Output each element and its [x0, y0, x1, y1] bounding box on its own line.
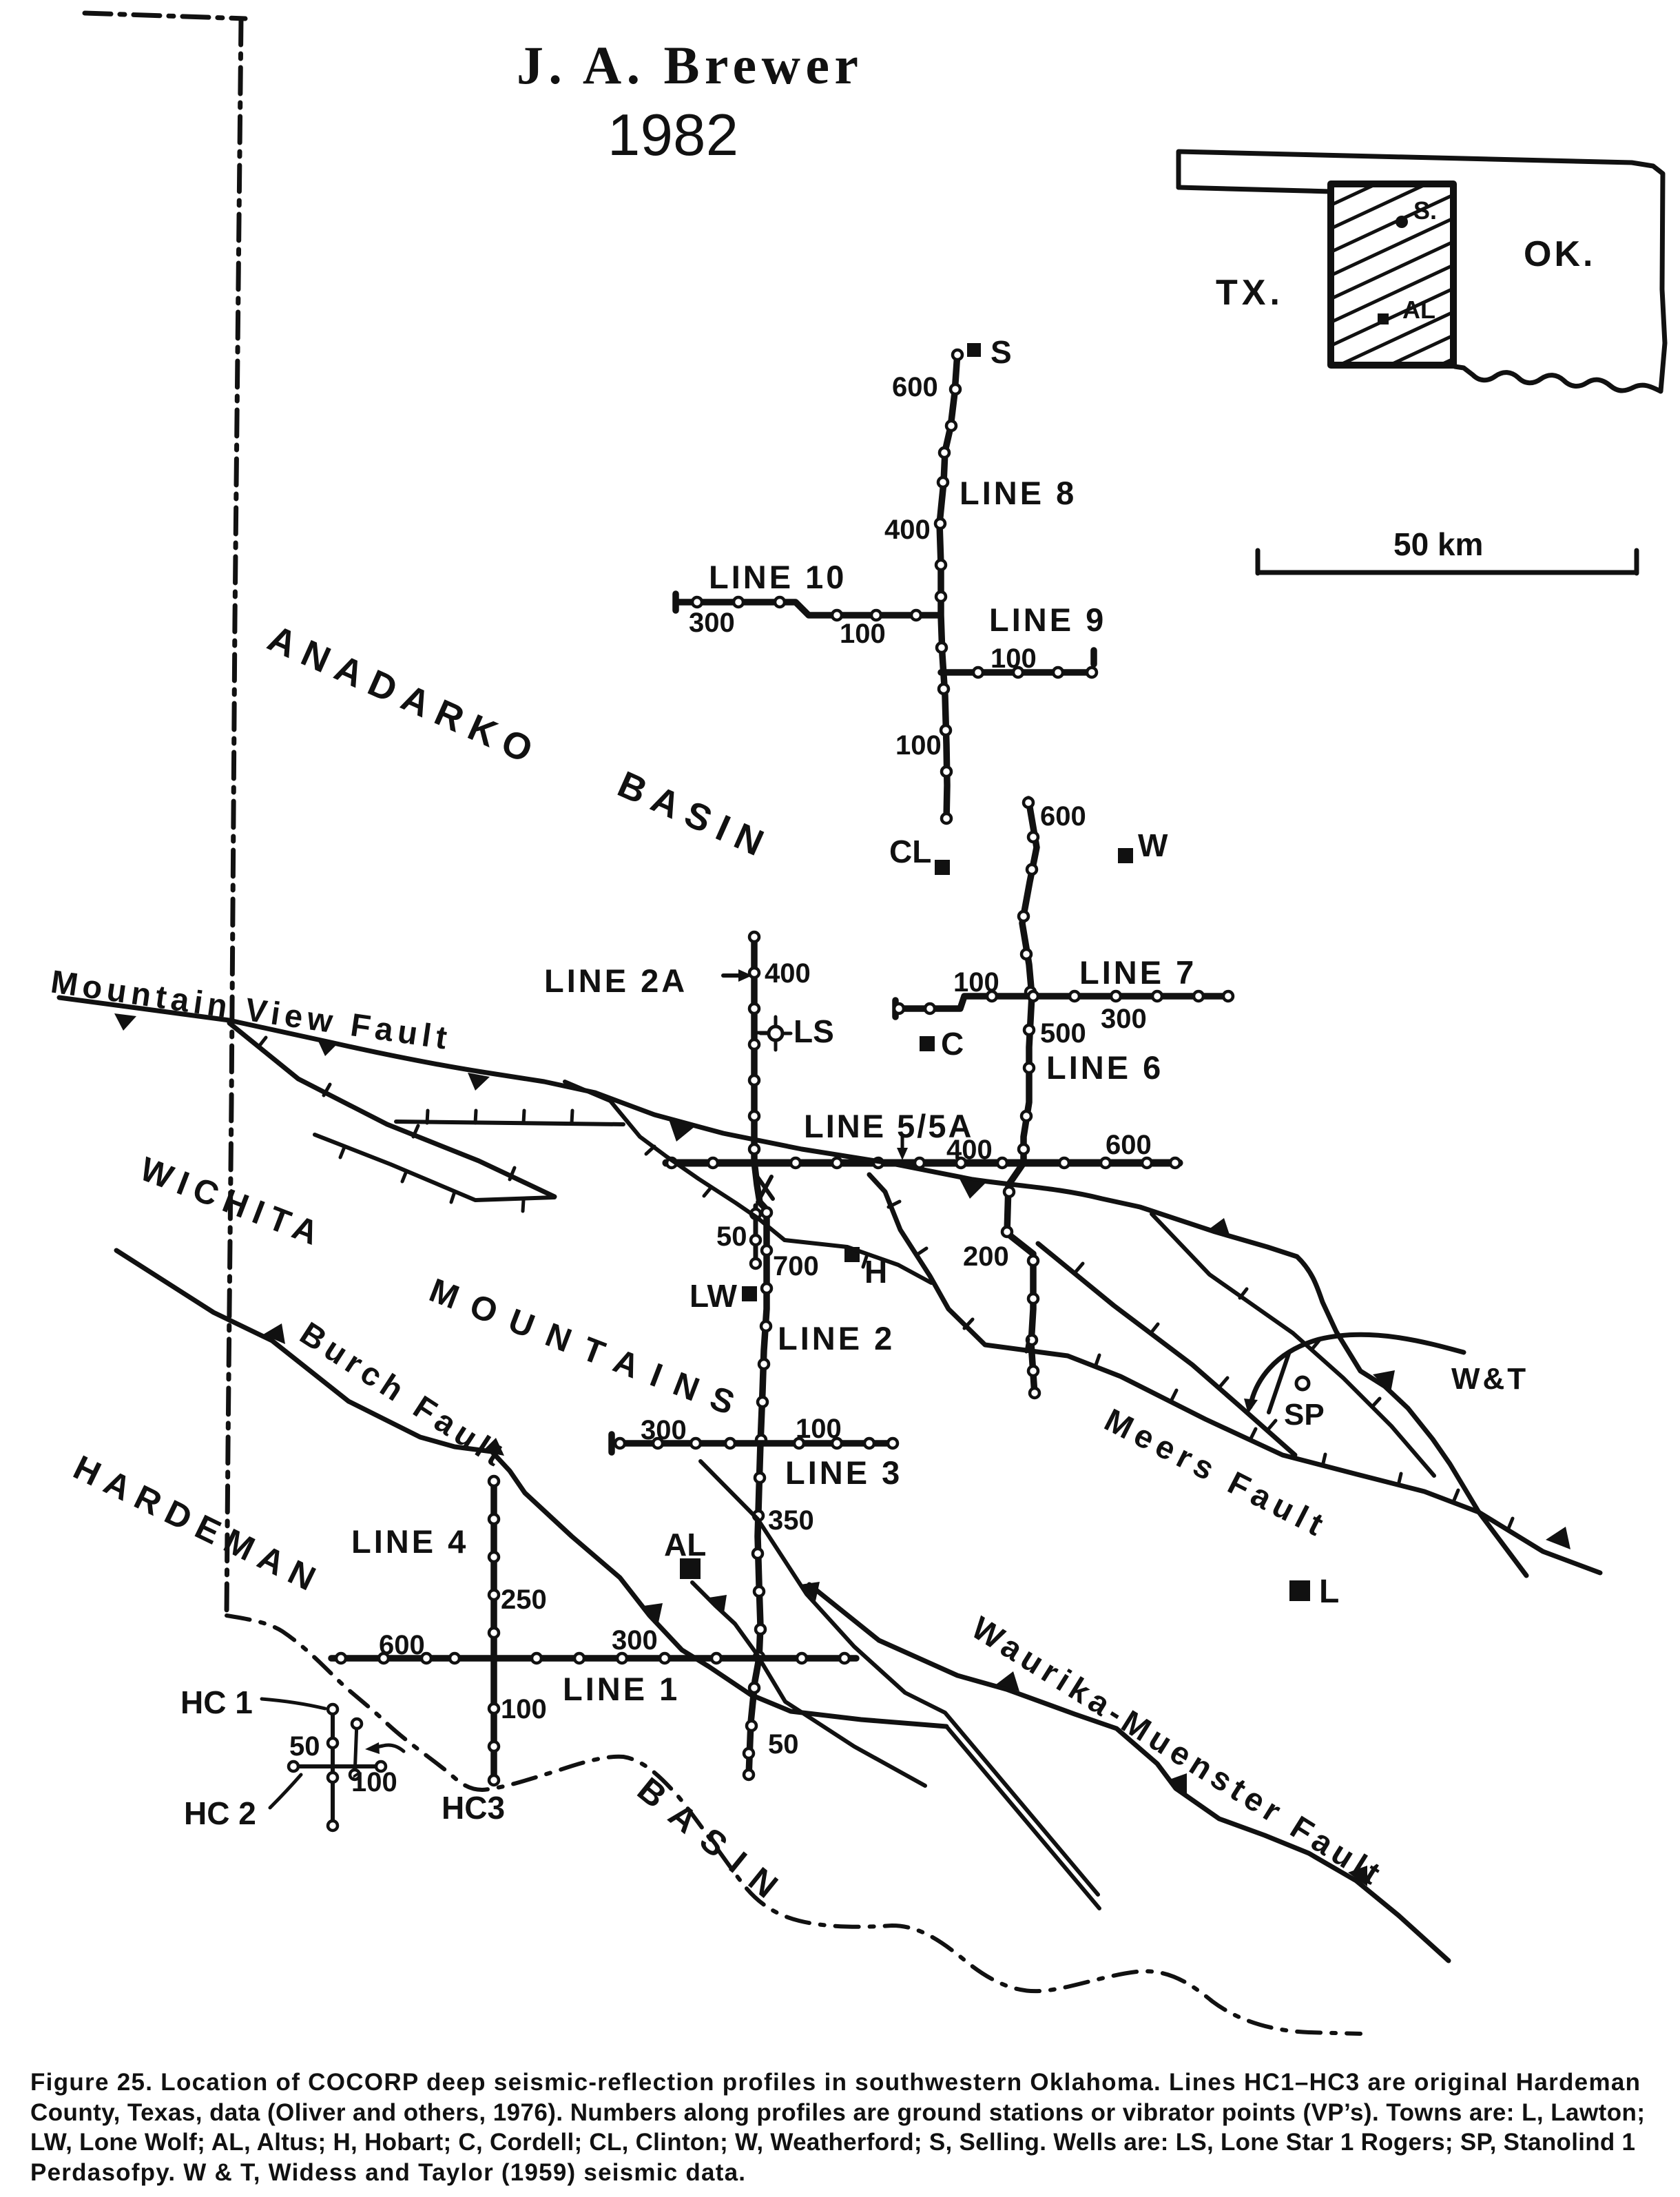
- svg-text:LINE 10: LINE 10: [709, 559, 847, 595]
- svg-text:300: 300: [641, 1415, 687, 1445]
- svg-text:350: 350: [768, 1505, 814, 1536]
- svg-text:AL: AL: [1402, 296, 1435, 324]
- svg-text:L: L: [1319, 1574, 1339, 1610]
- svg-text:50: 50: [716, 1221, 747, 1252]
- svg-text:300: 300: [612, 1625, 658, 1656]
- svg-text:100: 100: [991, 643, 1037, 674]
- svg-text:LW: LW: [689, 1278, 738, 1314]
- svg-text:400: 400: [884, 515, 931, 545]
- svg-text:CL: CL: [889, 834, 931, 869]
- svg-text:W: W: [1138, 827, 1168, 863]
- svg-text:100: 100: [351, 1767, 397, 1797]
- svg-text:600: 600: [379, 1630, 425, 1660]
- svg-text:LINE 3: LINE 3: [785, 1454, 902, 1491]
- svg-text:600: 600: [1040, 801, 1086, 832]
- svg-text:Figure 25. Location of COCORP: Figure 25. Location of COCORP deep seism…: [30, 2069, 1640, 2096]
- svg-text:600: 600: [1106, 1130, 1152, 1160]
- svg-text:LINE 8: LINE 8: [960, 475, 1077, 511]
- svg-text:50: 50: [289, 1731, 320, 1762]
- svg-text:50: 50: [768, 1729, 799, 1760]
- svg-text:HC 2: HC 2: [184, 1795, 256, 1831]
- svg-text:LINE 6: LINE 6: [1046, 1049, 1163, 1086]
- svg-text:S: S: [991, 334, 1012, 370]
- svg-text:300: 300: [689, 608, 735, 638]
- svg-text:LINE 2A: LINE 2A: [544, 962, 687, 999]
- svg-text:C: C: [941, 1026, 964, 1062]
- svg-text:400: 400: [765, 958, 811, 989]
- svg-text:50 km: 50 km: [1393, 526, 1483, 562]
- svg-text:SP: SP: [1284, 1398, 1325, 1432]
- svg-text:LINE 1: LINE 1: [563, 1671, 680, 1707]
- svg-text:Perdasofpy. W & T, Widess and: Perdasofpy. W & T, Widess and Taylor (19…: [30, 2159, 745, 2186]
- svg-text:J. A. Brewer: J. A. Brewer: [517, 35, 861, 95]
- svg-text:200: 200: [963, 1241, 1009, 1272]
- svg-text:100: 100: [501, 1694, 547, 1724]
- svg-text:100: 100: [895, 730, 942, 761]
- svg-text:100: 100: [840, 619, 886, 649]
- svg-text:County, Texas, data (Oliver an: County, Texas, data (Oliver and others, …: [30, 2099, 1645, 2126]
- svg-text:LINE 7: LINE 7: [1079, 954, 1196, 991]
- svg-text:S.: S.: [1413, 196, 1437, 225]
- svg-text:400: 400: [946, 1135, 993, 1165]
- svg-text:HC 1: HC 1: [180, 1684, 253, 1720]
- svg-text:100: 100: [953, 967, 999, 998]
- svg-text:LS: LS: [794, 1013, 834, 1049]
- svg-text:AL: AL: [664, 1527, 706, 1562]
- svg-text:LINE 4: LINE 4: [351, 1523, 468, 1560]
- svg-text:LW, Lone Wolf; AL, Altus; H, H: LW, Lone Wolf; AL, Altus; H, Hobart; C, …: [30, 2129, 1635, 2156]
- svg-text:LINE 9: LINE 9: [989, 601, 1106, 638]
- svg-text:TX.: TX.: [1216, 273, 1284, 313]
- svg-text:1982: 1982: [608, 103, 738, 168]
- svg-text:HC3: HC3: [442, 1790, 505, 1826]
- svg-text:100: 100: [796, 1414, 842, 1444]
- svg-text:300: 300: [1101, 1004, 1147, 1034]
- svg-text:LINE 2: LINE 2: [778, 1320, 895, 1357]
- svg-text:250: 250: [501, 1585, 547, 1615]
- svg-text:700: 700: [773, 1251, 819, 1281]
- svg-text:OK.: OK.: [1524, 234, 1595, 274]
- svg-text:W&T: W&T: [1451, 1362, 1528, 1396]
- svg-text:600: 600: [892, 372, 938, 402]
- svg-text:500: 500: [1040, 1018, 1086, 1049]
